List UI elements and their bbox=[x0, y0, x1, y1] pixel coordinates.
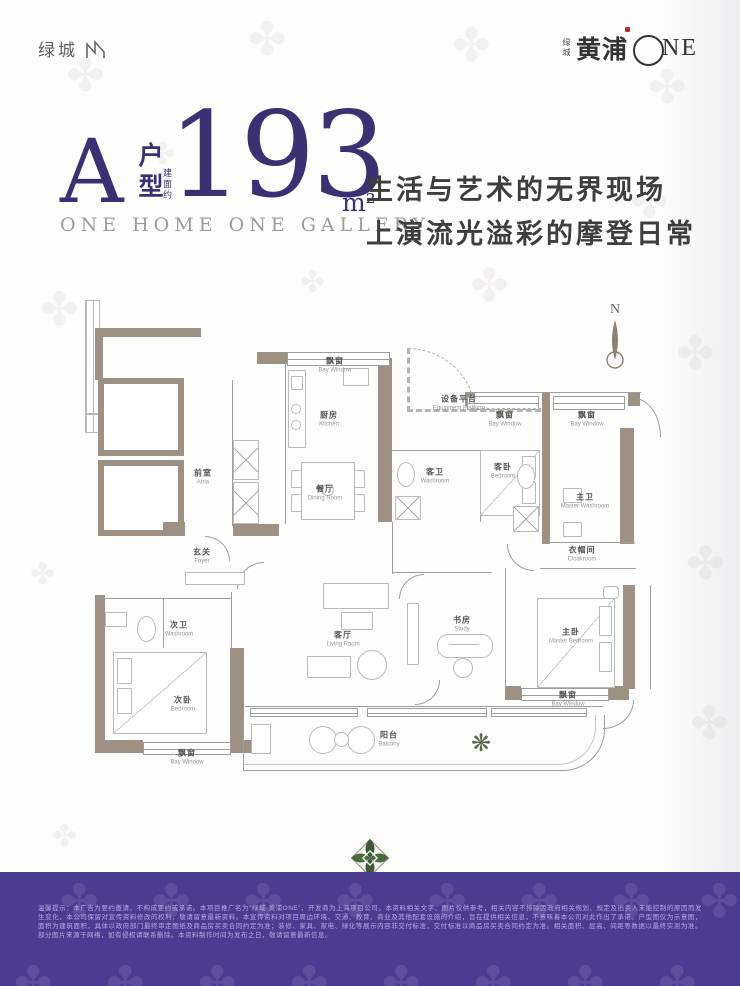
band-floral-motif bbox=[658, 960, 697, 986]
partition-line bbox=[540, 568, 636, 569]
one-o-ring-icon bbox=[633, 35, 664, 66]
background-floral-motif bbox=[248, 16, 287, 62]
room-label-cn: 客厅 bbox=[324, 631, 363, 641]
room-label-en: Bay Window bbox=[488, 421, 521, 428]
sofa bbox=[323, 583, 389, 609]
toilet bbox=[397, 462, 415, 487]
stove-burner bbox=[291, 404, 301, 414]
partition-line bbox=[97, 598, 231, 599]
background-floral-motif bbox=[452, 22, 491, 68]
background-floral-motif bbox=[40, 286, 79, 332]
room-label-living: 客厅Living Room bbox=[324, 631, 363, 650]
partition-line bbox=[285, 364, 286, 524]
room-label-cn: 次卫 bbox=[162, 621, 196, 631]
wall-segment bbox=[233, 524, 279, 536]
wall-segment bbox=[620, 428, 634, 544]
wall-segment bbox=[623, 585, 635, 689]
pillow bbox=[599, 642, 612, 672]
balcony-table bbox=[334, 732, 349, 747]
room-label-balcony: 阳台Balcony bbox=[377, 731, 402, 750]
stove-burner bbox=[291, 420, 301, 430]
greentown-logo-text: 绿城 bbox=[38, 36, 78, 61]
room-label-cn: 设备平台 bbox=[428, 395, 489, 405]
room-label-master-bay-bottom: 飘窗Bay Window bbox=[549, 691, 588, 710]
room-label-en: Atria bbox=[195, 479, 210, 486]
wall-segment bbox=[95, 740, 143, 753]
room-label-dining: 餐厅Dining Room bbox=[305, 485, 345, 504]
greentown-roof-icon bbox=[84, 38, 112, 60]
dining-chair bbox=[291, 470, 302, 488]
bay-window-glass bbox=[553, 396, 625, 410]
partition-line bbox=[505, 568, 506, 688]
wall-segment bbox=[378, 358, 392, 522]
coffee-table bbox=[341, 612, 373, 630]
kitchen-sink bbox=[291, 376, 303, 390]
pillow bbox=[117, 688, 132, 714]
room-label-en: Balcony bbox=[378, 741, 399, 748]
band-floral-motif bbox=[474, 960, 513, 986]
balcony-cabinet bbox=[251, 724, 271, 754]
room-label-cn: 厨房 bbox=[317, 411, 340, 421]
room-label-kitchen: 厨房Kitchen bbox=[317, 411, 340, 430]
foyer-bench bbox=[185, 572, 245, 585]
tv-wall bbox=[407, 603, 419, 665]
room-label-en: Living Room bbox=[326, 641, 359, 648]
room-label-cn: 主卧 bbox=[545, 628, 597, 638]
room-label-foyer: 玄关Foyer bbox=[193, 548, 211, 567]
room-label-kitchen-bay: 飘窗Bay Window bbox=[316, 357, 355, 376]
balcony-chair bbox=[347, 726, 375, 754]
duct-shaft bbox=[233, 482, 259, 524]
room-label-cn: 飘窗 bbox=[168, 749, 207, 759]
balcony-chair bbox=[309, 726, 337, 754]
room-label-en: Bay Window bbox=[170, 759, 203, 766]
room-label-en: Bay Window bbox=[318, 367, 351, 374]
room-label-en: Bedroom bbox=[491, 473, 515, 480]
washroom-sink bbox=[105, 612, 127, 627]
room-label-study: 书房Study bbox=[453, 616, 471, 635]
balcony-inner-line bbox=[243, 715, 596, 765]
tagline-line2: 上演流光溢彩的摩登日常 bbox=[366, 212, 696, 251]
room-label-en: Bay Window bbox=[551, 701, 584, 708]
door-swing-arc bbox=[507, 544, 534, 571]
room-label-cn: 飘窗 bbox=[316, 357, 355, 367]
greentown-logo: 绿城 bbox=[38, 36, 112, 61]
background-floral-motif bbox=[648, 64, 687, 110]
dining-chair bbox=[291, 494, 302, 512]
room-label-en: Master Bedroom bbox=[549, 638, 593, 645]
partition-line bbox=[547, 542, 635, 543]
washroom-sink bbox=[563, 522, 582, 537]
huangpu-one-logo-main-text: 黄浦 bbox=[576, 37, 628, 64]
room-label-cn: 衣帽间 bbox=[565, 546, 599, 556]
red-seal-icon bbox=[625, 27, 630, 32]
band-floral-motif bbox=[106, 960, 145, 986]
room-label-guest-bed: 客卧Bedroom bbox=[489, 463, 517, 482]
room-label-master-wash: 主卫Master Washroom bbox=[557, 493, 614, 512]
wall-segment bbox=[609, 686, 629, 700]
band-floral-motif bbox=[14, 960, 53, 986]
band-floral-motif bbox=[198, 960, 237, 986]
huangpu-one-logo: 绿城 黄浦 NE bbox=[561, 30, 698, 66]
background-floral-motif bbox=[30, 560, 55, 590]
room-label-en: Equipment Platform bbox=[433, 405, 485, 412]
partition-line bbox=[231, 592, 232, 648]
partition-line bbox=[650, 585, 651, 689]
dining-chair bbox=[354, 494, 365, 512]
outer-corner-arc bbox=[603, 700, 634, 729]
disclaimer-text: 温馨提示：本广告为要约邀请，不构成要约或承诺。本项目推广名为“绿城·黄浦ONE”… bbox=[38, 904, 702, 940]
room-label-cn: 飘窗 bbox=[549, 691, 588, 701]
pillow bbox=[599, 606, 612, 636]
room-label-cn: 玄关 bbox=[193, 548, 211, 558]
wall-segment bbox=[95, 328, 103, 380]
duct-shaft bbox=[233, 440, 259, 480]
room-label-cn: 次卧 bbox=[169, 696, 197, 706]
room-label-en: Study bbox=[454, 626, 469, 633]
room-label-guest-wash: 客卫Washroom bbox=[418, 468, 452, 487]
plant-icon: ❋ bbox=[471, 732, 491, 756]
toilet bbox=[517, 464, 535, 489]
wall-segment bbox=[95, 595, 105, 753]
lounge-chair bbox=[357, 650, 387, 680]
wall-segment bbox=[505, 686, 521, 700]
wall-segment bbox=[542, 392, 550, 544]
background-floral-motif bbox=[52, 822, 77, 852]
study-desk bbox=[437, 634, 493, 658]
room-label-cn: 前室 bbox=[194, 469, 212, 479]
side-table bbox=[307, 656, 351, 678]
room-label-en: Foyer bbox=[194, 558, 209, 565]
room-label-en: Kitchen bbox=[319, 421, 339, 428]
room-label-guest-bay: 飘窗Bay Window bbox=[486, 411, 525, 430]
room-label-cn: 阳台 bbox=[377, 731, 402, 741]
wall-segment bbox=[95, 328, 201, 337]
wall-segment bbox=[230, 648, 244, 752]
band-floral-motif bbox=[700, 878, 739, 924]
toilet bbox=[137, 616, 156, 642]
band-floral-motif bbox=[566, 960, 605, 986]
room-label-second-wash: 次卫Washroom bbox=[162, 621, 196, 640]
shower bbox=[513, 506, 539, 532]
partition-line bbox=[392, 572, 492, 573]
pillow bbox=[117, 658, 132, 684]
room-label-cn: 书房 bbox=[453, 616, 471, 626]
room-label-cn: 飘窗 bbox=[568, 411, 607, 421]
partition-line bbox=[465, 392, 641, 393]
wall-segment bbox=[163, 522, 185, 536]
band-floral-motif bbox=[382, 960, 421, 986]
outer-corner-arc bbox=[634, 398, 661, 437]
nightstand bbox=[603, 586, 619, 599]
room-label-en: Cloakroom bbox=[568, 556, 597, 563]
room-label-master-bed: 主卧Master Bedroom bbox=[545, 628, 597, 647]
tagline-line1: 生活与艺术的无界现场 bbox=[366, 168, 666, 207]
huangpu-one-logo-suffix: NE bbox=[662, 35, 698, 62]
room-label-cn: 客卧 bbox=[489, 463, 517, 473]
room-label-cn: 客卫 bbox=[418, 468, 452, 478]
background-floral-motif bbox=[300, 268, 325, 298]
background-floral-motif bbox=[686, 540, 725, 586]
room-label-second-bay: 飘窗Bay Window bbox=[168, 749, 207, 768]
room-label-cn: 主卫 bbox=[557, 493, 614, 503]
dining-chair bbox=[354, 470, 365, 488]
room-label-atria: 前室Atria bbox=[194, 469, 212, 488]
room-label-en: Master Washroom bbox=[561, 503, 609, 510]
room-label-en: Washroom bbox=[421, 478, 450, 485]
desk-chair bbox=[453, 658, 473, 678]
room-label-cloakroom: 衣帽间Cloakroom bbox=[565, 546, 599, 565]
partition-line bbox=[392, 450, 480, 451]
room-label-cn: 餐厅 bbox=[305, 485, 345, 495]
room-label-equipment: 设备平台Equipment Platform bbox=[428, 395, 489, 414]
partition-line bbox=[392, 522, 393, 574]
background-floral-motif bbox=[690, 700, 729, 746]
room-label-en: Bay Window bbox=[570, 421, 603, 428]
door-swing-arc bbox=[415, 680, 440, 705]
unit-type-letter: A bbox=[60, 128, 124, 216]
room-label-en: Dining Room bbox=[308, 495, 342, 502]
wall-segment bbox=[257, 352, 287, 364]
room-label-en: Washroom bbox=[165, 631, 194, 638]
huangpu-one-logo-main: 黄浦 bbox=[576, 30, 628, 66]
shower bbox=[395, 496, 421, 520]
room-label-master-bay-top: 飘窗Bay Window bbox=[568, 411, 607, 430]
floor-plan: ❋ 前室Atria 玄关Foyer 厨房Kitchen 飘窗Bay Window… bbox=[85, 300, 685, 810]
elevator-shaft bbox=[98, 378, 184, 456]
footer-band: 温馨提示：本广告为要约邀请，不构成要约或承诺。本项目推广名为“绿城·黄浦ONE”… bbox=[0, 872, 740, 986]
room-label-cn: 飘窗 bbox=[486, 411, 525, 421]
room-label-en: Bedroom bbox=[171, 706, 195, 713]
room-label-second-bed: 次卧Bedroom bbox=[169, 696, 197, 715]
huangpu-one-logo-small: 绿城 bbox=[561, 38, 572, 58]
desk-pen-line bbox=[449, 644, 479, 645]
band-floral-motif bbox=[290, 960, 329, 986]
door-swing-arc bbox=[399, 574, 424, 599]
